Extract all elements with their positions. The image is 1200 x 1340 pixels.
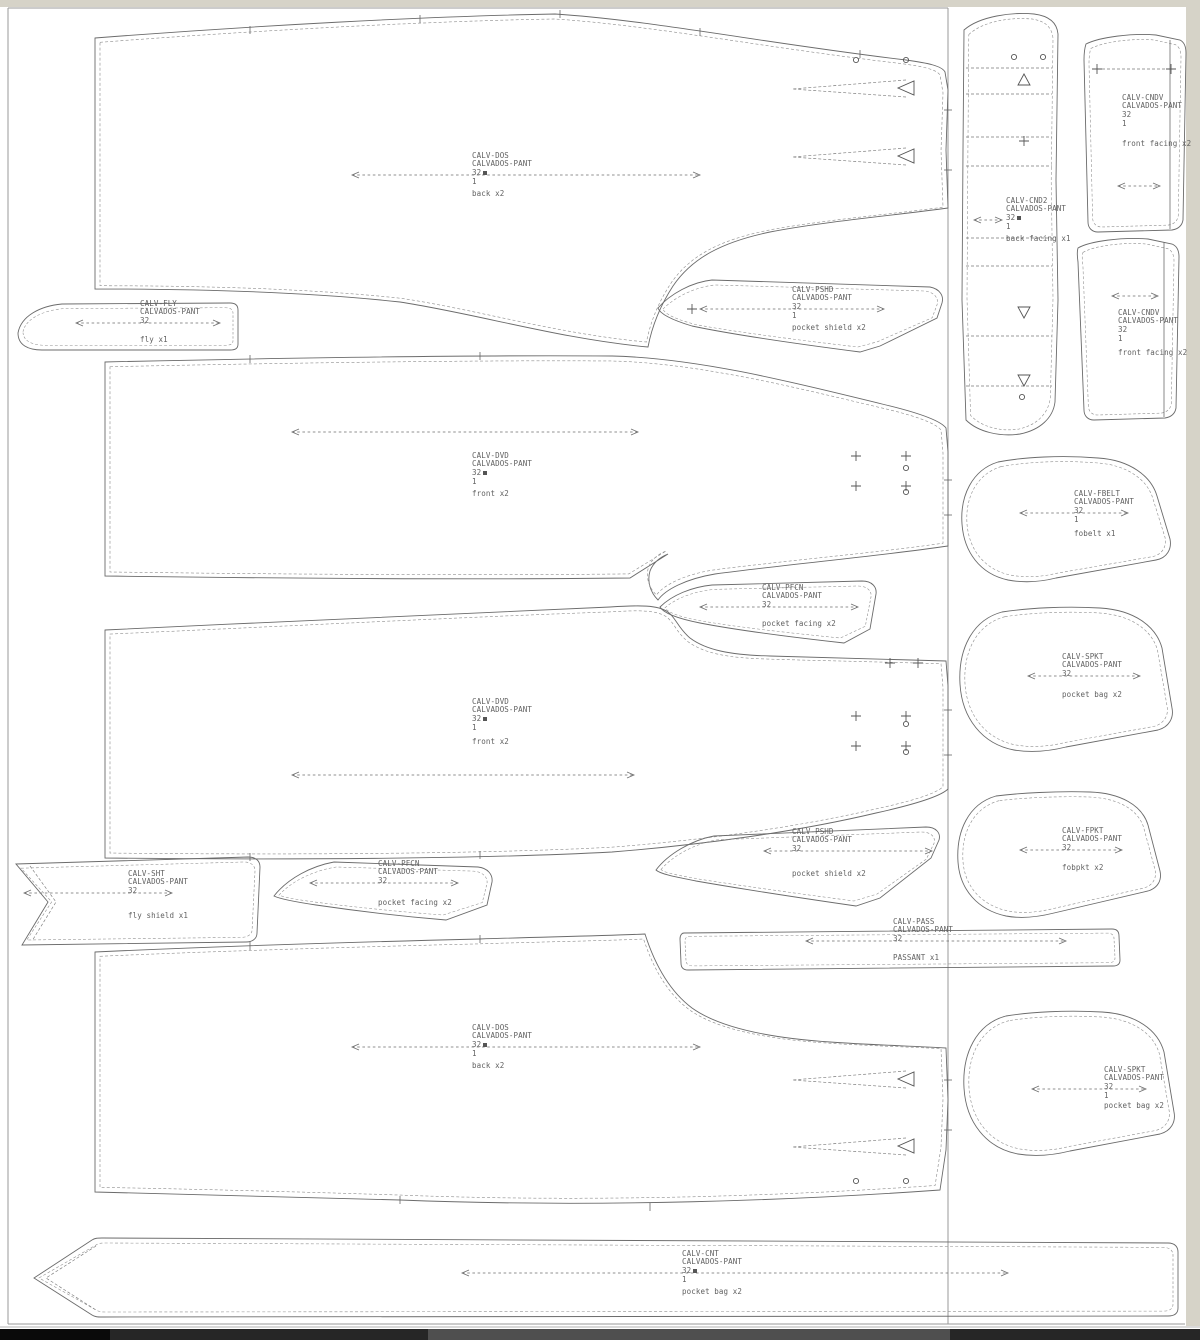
pattern-piece-fob-belt[interactable]: CALV-FBELTCALVADOS-PANT321fobelt x1 [962, 457, 1171, 582]
dart-triangle-icon [1018, 375, 1030, 386]
taskbar-segment[interactable] [0, 1329, 110, 1340]
piece-label: CALV-PFCNCALVADOS-PANT32pocket facing x2 [762, 583, 836, 628]
match-mark-icon [901, 451, 911, 461]
pattern-piece-back-facing[interactable]: CALV-CND2CALVADOS-PANT321back facing x1 [962, 14, 1071, 435]
drill-hole-icon [903, 721, 908, 726]
dashed-detail-line [46, 1246, 96, 1310]
piece-label-product: CALVADOS-PANT [472, 159, 532, 168]
dart-triangle-icon [898, 81, 914, 95]
piece-label-count: 1 [472, 723, 477, 732]
piece-label: CALV-SPKTCALVADOS-PANT321pocket bag x2 [1104, 1065, 1164, 1110]
size-marker-icon [483, 171, 487, 175]
piece-label-size: 32 [472, 714, 481, 723]
size-marker-icon [483, 1043, 487, 1047]
pattern-piece-fly[interactable]: CALV-FLYCALVADOS-PANT32fly x1 [18, 299, 238, 350]
piece-label-cut: front facing x2 [1118, 348, 1187, 357]
pattern-piece-waistband[interactable]: CALV-CNTCALVADOS-PANT321pocket bag x2 [34, 1238, 1178, 1317]
piece-label-product: CALVADOS-PANT [472, 705, 532, 714]
taskbar-segment[interactable] [428, 1329, 950, 1340]
match-mark-icon [851, 711, 861, 721]
piece-label: CALV-PASSCALVADOS-PANT32PASSANT x1 [893, 917, 953, 962]
seam-allowance-line [110, 361, 943, 595]
piece-label-product: CALVADOS-PANT [1062, 660, 1122, 669]
pattern-canvas[interactable]: CALV-DOSCALVADOS-PANT321back x2CALV-FLYC… [0, 0, 1200, 1340]
piece-outline[interactable] [34, 1238, 1178, 1317]
piece-label: CALV-FBELTCALVADOS-PANT321fobelt x1 [1074, 489, 1134, 538]
window-chrome-top [0, 0, 1200, 7]
piece-label-size: 32 [472, 1040, 481, 1049]
piece-label-product: CALVADOS-PANT [472, 1031, 532, 1040]
dashed-detail-line [792, 1071, 906, 1155]
piece-label-cut: pocket bag x2 [1104, 1101, 1164, 1110]
piece-label: CALV-DVDCALVADOS-PANT321front x2 [472, 451, 532, 498]
piece-outline[interactable] [964, 1011, 1175, 1155]
drill-hole-icon [1040, 54, 1045, 59]
piece-label-count: 1 [472, 1049, 477, 1058]
pattern-piece-pocket-shield-upper[interactable]: CALV-PSHDCALVADOS-PANT321pocket shield x… [658, 280, 943, 352]
piece-label: CALV-DVDCALVADOS-PANT321front x2 [472, 697, 532, 746]
pattern-piece-pocket-facing-lower[interactable]: CALV-PFCNCALVADOS-PANT32pocket facing x2 [274, 859, 492, 920]
dart-triangle-icon [898, 1139, 914, 1153]
size-marker-icon [483, 471, 487, 475]
taskbar-segment[interactable] [950, 1329, 1200, 1340]
size-marker-icon [1017, 216, 1021, 220]
piece-label-count: 1 [472, 477, 477, 486]
match-mark-icon [1166, 64, 1176, 74]
piece-label-product: CALVADOS-PANT [1006, 204, 1066, 213]
size-marker-icon [483, 717, 487, 721]
seam-allowance-line [1082, 243, 1174, 415]
piece-label: CALV-PSHDCALVADOS-PANT321pocket shield x… [792, 285, 866, 332]
pattern-piece-back-lower[interactable]: CALV-DOSCALVADOS-PANT321back x2 [95, 934, 952, 1211]
piece-label-product: CALVADOS-PANT [682, 1257, 742, 1266]
drill-hole-icon [903, 465, 908, 470]
piece-label-cut: fobelt x1 [1074, 529, 1116, 538]
piece-label-cut: back x2 [472, 1061, 504, 1070]
piece-label-cut: back facing x1 [1006, 234, 1071, 243]
piece-label-product: CALVADOS-PANT [1074, 497, 1134, 506]
pattern-piece-passant[interactable]: CALV-PASSCALVADOS-PANT32PASSANT x1 [680, 917, 1120, 970]
seam-allowance-line [963, 797, 1156, 913]
seam-allowance-line [100, 939, 943, 1198]
piece-label-count: 1 [472, 177, 477, 186]
pattern-piece-front-facing-right[interactable]: CALV-CNDVCALVADOS-PANT321front facing x2 [1077, 238, 1187, 420]
dart-triangle-icon [898, 1072, 914, 1086]
piece-label-count: 1 [1122, 119, 1127, 128]
piece-label-count: 1 [1074, 515, 1079, 524]
piece-label-size: 32 [1006, 213, 1015, 222]
drill-hole-icon [1019, 394, 1024, 399]
piece-label-product: CALVADOS-PANT [140, 307, 200, 316]
match-mark-icon [1019, 136, 1029, 146]
piece-label-cut: pocket shield x2 [792, 869, 866, 878]
piece-outline[interactable] [95, 934, 948, 1203]
piece-label-cut: front facing x2 [1122, 139, 1191, 148]
piece-label-cut: pocket facing x2 [378, 898, 452, 907]
pattern-piece-front-facing-top[interactable]: CALV-CNDVCALVADOS-PANT321front facing x2 [1084, 34, 1191, 232]
piece-label-cut: pocket bag x2 [1062, 690, 1122, 699]
piece-label-size: 32 [792, 844, 801, 853]
piece-label-count: 1 [682, 1275, 687, 1284]
piece-label: CALV-FPKTCALVADOS-PANT32fobpkt x2 [1062, 826, 1122, 872]
piece-label-product: CALVADOS-PANT [792, 835, 852, 844]
pattern-piece-front-upper[interactable]: CALV-DVDCALVADOS-PANT321front x2 [105, 352, 952, 600]
dashed-detail-line [30, 866, 56, 941]
piece-label-product: CALVADOS-PANT [1122, 101, 1182, 110]
piece-label: CALV-DOSCALVADOS-PANT321back x2 [472, 151, 532, 198]
match-mark-icon [1092, 64, 1102, 74]
match-mark-icon [913, 658, 923, 668]
pattern-marker-window: CALV-DOSCALVADOS-PANT321back x2CALV-FLYC… [0, 0, 1200, 1340]
piece-label-product: CALVADOS-PANT [378, 867, 438, 876]
piece-label: CALV-SHTCALVADOS-PANT32fly shield x1 [128, 869, 188, 920]
piece-label-product: CALVADOS-PANT [792, 293, 852, 302]
piece-label: CALV-CND2CALVADOS-PANT321back facing x1 [1006, 196, 1071, 243]
dart-triangle-icon [1018, 74, 1030, 85]
piece-label-size: 32 [682, 1266, 691, 1275]
piece-outline[interactable] [18, 303, 238, 350]
seam-allowance-line [967, 462, 1166, 577]
piece-outline[interactable] [958, 792, 1161, 918]
pattern-piece-fob-pocket[interactable]: CALV-FPKTCALVADOS-PANT32fobpkt x2 [958, 792, 1161, 918]
taskbar-segment[interactable] [110, 1329, 428, 1340]
piece-outline[interactable] [105, 356, 948, 600]
piece-label: CALV-FLYCALVADOS-PANT32fly x1 [140, 299, 200, 344]
piece-outline[interactable] [105, 606, 948, 859]
drill-hole-icon [853, 1178, 858, 1183]
piece-label-size: 32 [1122, 110, 1131, 119]
piece-label-product: CALVADOS-PANT [893, 925, 953, 934]
dart-triangle-icon [898, 149, 914, 163]
piece-label-cut: front x2 [472, 737, 509, 746]
piece-label-cut: pocket facing x2 [762, 619, 836, 628]
taskbar-strip[interactable] [0, 1329, 1200, 1340]
match-mark-icon [851, 451, 861, 461]
drill-hole-icon [853, 57, 858, 62]
piece-label-count: 1 [1006, 222, 1011, 231]
piece-outline[interactable] [962, 457, 1171, 582]
piece-label: CALV-CNTCALVADOS-PANT321pocket bag x2 [682, 1249, 742, 1296]
piece-label: CALV-CNDVCALVADOS-PANT321front facing x2 [1118, 308, 1187, 357]
piece-label-product: CALVADOS-PANT [1104, 1073, 1164, 1082]
pattern-piece-fly-shield[interactable]: CALV-SHTCALVADOS-PANT32fly shield x1 [16, 857, 260, 945]
piece-label-cut: front x2 [472, 489, 509, 498]
piece-label-product: CALVADOS-PANT [472, 459, 532, 468]
dart-triangle-icon [1018, 307, 1030, 318]
piece-label-product: CALVADOS-PANT [1118, 316, 1178, 325]
piece-label-size: 32 [472, 468, 481, 477]
piece-label-cut: PASSANT x1 [893, 953, 939, 962]
piece-label-product: CALVADOS-PANT [128, 877, 188, 886]
piece-label-size: 32 [1062, 843, 1071, 852]
pattern-piece-pocket-bag-bottom[interactable]: CALV-SPKTCALVADOS-PANT321pocket bag x2 [964, 1011, 1175, 1155]
piece-label: CALV-SPKTCALVADOS-PANT32pocket bag x2 [1062, 652, 1122, 699]
piece-label-size: 32 [1074, 506, 1083, 515]
piece-label-cut: back x2 [472, 189, 504, 198]
piece-label-size: 32 [472, 168, 481, 177]
piece-label-product: CALVADOS-PANT [1062, 834, 1122, 843]
pattern-piece-pocket-shield-lower[interactable]: CALV-PSHDCALVADOS-PANT32pocket shield x2 [656, 827, 939, 906]
piece-label-size: 32 [893, 934, 902, 943]
piece-label-count: 1 [792, 311, 797, 320]
seam-allowance-line [1089, 39, 1181, 227]
piece-label-count: 1 [1118, 334, 1123, 343]
pattern-piece-front-lower[interactable]: CALV-DVDCALVADOS-PANT321front x2 [105, 606, 952, 861]
piece-label-count: 1 [1104, 1091, 1109, 1100]
seam-allowance-line [969, 1016, 1170, 1150]
piece-label-product: CALVADOS-PANT [762, 591, 822, 600]
drill-hole-icon [1011, 54, 1016, 59]
seam-allowance-line [23, 308, 233, 346]
piece-label-cut: pocket bag x2 [682, 1287, 742, 1296]
seam-allowance-line [39, 1243, 1173, 1312]
seam-allowance-line [110, 611, 943, 854]
drill-hole-icon [903, 1178, 908, 1183]
piece-label-size: 32 [762, 600, 771, 609]
match-mark-icon [851, 481, 861, 491]
piece-label: CALV-CNDVCALVADOS-PANT321front facing x2 [1122, 93, 1191, 148]
piece-label: CALV-PSHDCALVADOS-PANT32pocket shield x2 [792, 827, 866, 878]
size-marker-icon [693, 1269, 697, 1273]
match-mark-icon [851, 741, 861, 751]
seam-allowance-line [965, 612, 1168, 746]
taskbar-top-edge [0, 1326, 1200, 1328]
piece-label-size: 32 [792, 302, 801, 311]
piece-label-size: 32 [1118, 325, 1127, 334]
match-mark-icon [901, 711, 911, 721]
piece-label-size: 32 [378, 876, 387, 885]
piece-label-size: 32 [128, 886, 137, 895]
pattern-piece-pocket-facing-mid[interactable]: CALV-PFCNCALVADOS-PANT32pocket facing x2 [660, 581, 876, 643]
piece-label-size: 32 [1104, 1082, 1113, 1091]
piece-label-cut: pocket shield x2 [792, 323, 866, 332]
piece-label-size: 32 [140, 316, 149, 325]
match-mark-icon [687, 304, 697, 314]
piece-outline[interactable] [960, 607, 1173, 751]
piece-label-cut: fly x1 [140, 335, 168, 344]
piece-label-cut: fobpkt x2 [1062, 863, 1104, 872]
dashed-detail-line [792, 80, 906, 165]
piece-label-cut: fly shield x1 [128, 911, 188, 920]
pattern-piece-pocket-bag-right[interactable]: CALV-SPKTCALVADOS-PANT32pocket bag x2 [960, 607, 1173, 751]
window-chrome-right [1186, 7, 1200, 1327]
piece-label-size: 32 [1062, 669, 1071, 678]
piece-label: CALV-DOSCALVADOS-PANT321back x2 [472, 1023, 532, 1070]
